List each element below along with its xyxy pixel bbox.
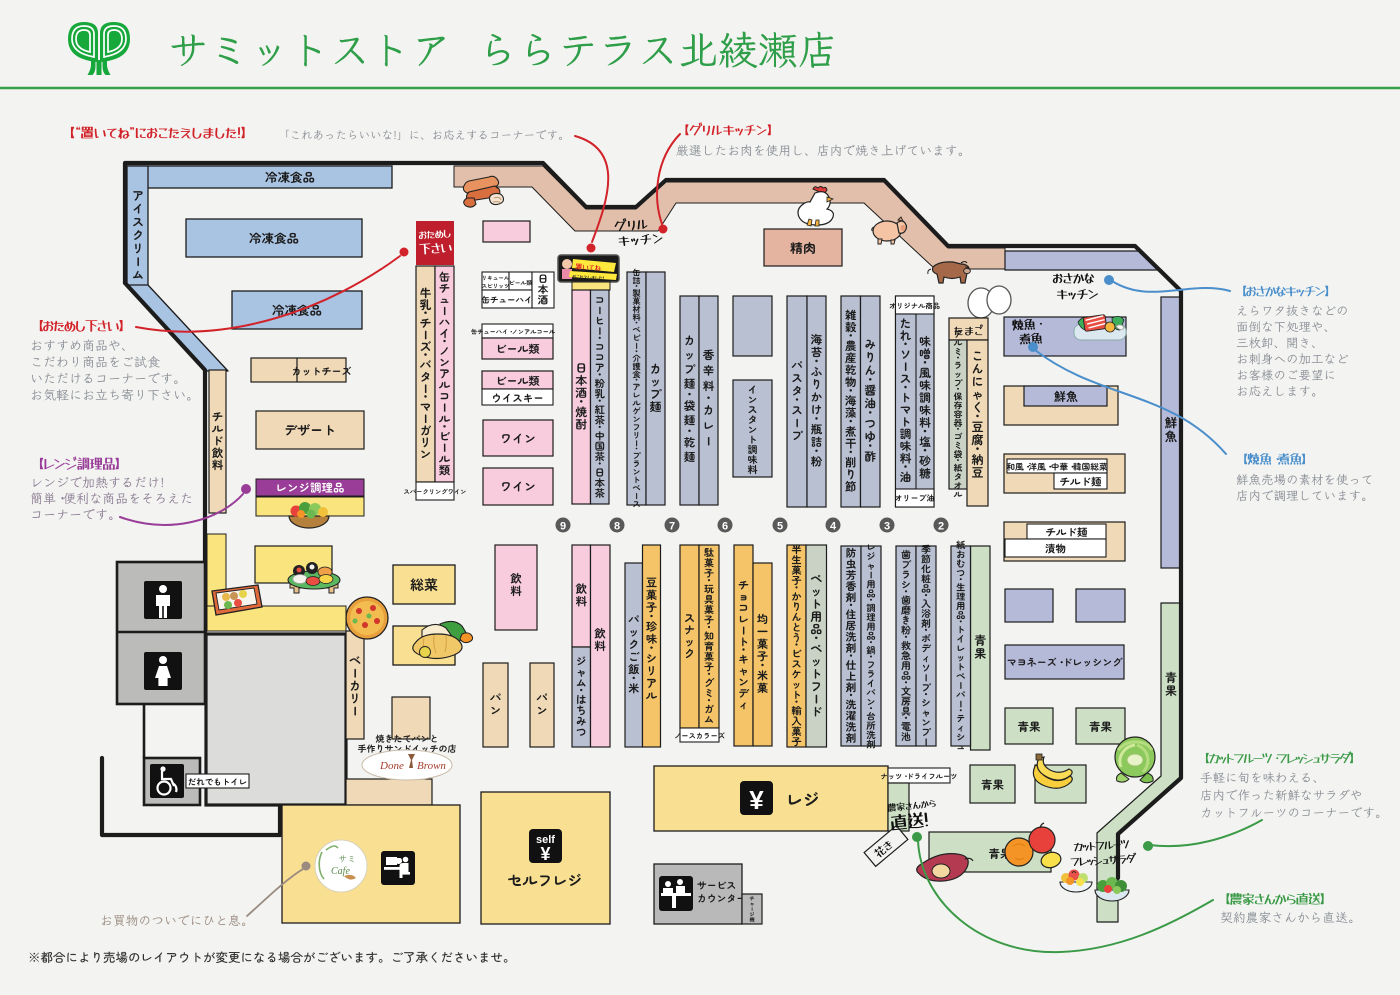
svg-text:6: 6	[722, 521, 728, 533]
svg-text:2: 2	[938, 521, 944, 533]
svg-text:7: 7	[669, 521, 675, 533]
svg-text:3: 3	[884, 521, 890, 533]
svg-text:¥: ¥	[540, 844, 550, 864]
svg-text:9: 9	[560, 521, 566, 533]
svg-text:4: 4	[830, 521, 837, 533]
svg-text:¥: ¥	[749, 785, 764, 815]
svg-text:5: 5	[777, 521, 783, 533]
svg-text:Done: Done	[379, 760, 404, 772]
svg-text:Brown: Brown	[417, 760, 446, 772]
svg-text:8: 8	[614, 521, 620, 533]
